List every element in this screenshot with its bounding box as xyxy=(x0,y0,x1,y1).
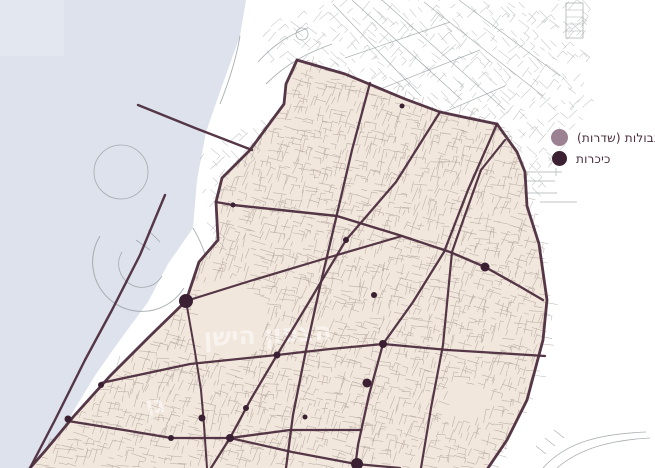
square-marker-9 xyxy=(363,379,372,388)
square-marker-3 xyxy=(343,237,349,243)
boundary-swatch-icon xyxy=(551,129,568,146)
legend-label-squares: כיכרות xyxy=(576,152,611,166)
square-marker-0 xyxy=(179,294,193,308)
square-marker-10 xyxy=(243,405,249,411)
square-marker-7 xyxy=(379,340,387,348)
square-marker-11 xyxy=(199,415,206,422)
square-marker-16 xyxy=(303,415,308,420)
square-swatch-icon xyxy=(552,151,567,166)
water-highlight xyxy=(0,0,64,56)
square-marker-6 xyxy=(371,292,377,298)
square-marker-5 xyxy=(481,263,490,272)
legend-item-squares: כיכרות xyxy=(551,150,655,167)
square-marker-14 xyxy=(98,382,104,388)
legend: גבולות (שדרות) כיכרות xyxy=(551,129,655,167)
square-marker-12 xyxy=(226,434,234,442)
square-marker-13 xyxy=(168,435,174,441)
square-marker-2 xyxy=(231,203,236,208)
map-window: הצפון הישןגן גבולות (שדרות) כיכרות xyxy=(0,0,655,468)
square-marker-8 xyxy=(274,352,281,359)
map-canvas: הצפון הישןגן xyxy=(0,0,655,468)
square-marker-15 xyxy=(65,416,72,423)
square-marker-4 xyxy=(400,104,405,109)
legend-label-boundaries: גבולות (שדרות) xyxy=(577,131,655,145)
legend-item-boundaries: גבולות (שדרות) xyxy=(551,129,655,146)
